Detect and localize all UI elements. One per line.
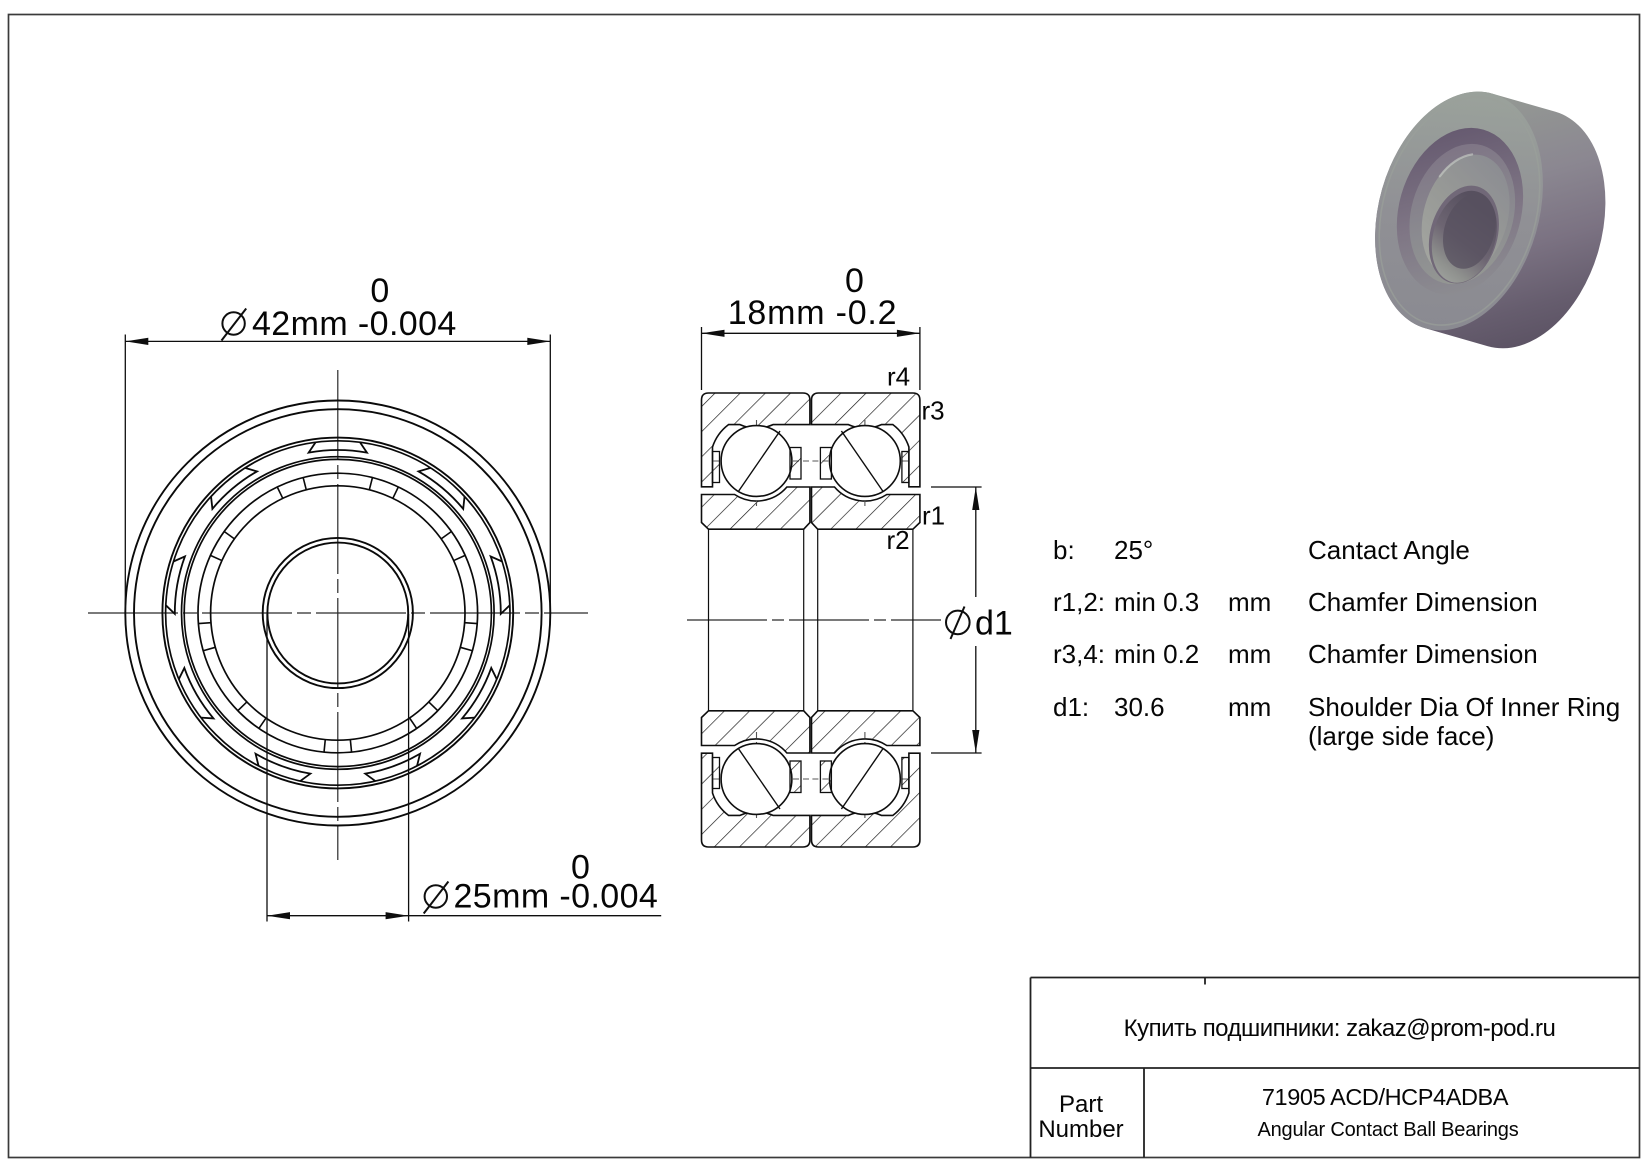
svg-text:25°: 25° <box>1114 535 1153 565</box>
svg-text:min 0.2: min 0.2 <box>1114 639 1199 669</box>
svg-text:Angular Contact Ball Bearings: Angular Contact Ball Bearings <box>1257 1119 1518 1141</box>
svg-text:71905 ACD/HCP4ADBA: 71905 ACD/HCP4ADBA <box>1262 1084 1509 1110</box>
svg-text:Part: Part <box>1059 1091 1103 1118</box>
svg-text:b:: b: <box>1053 535 1075 565</box>
svg-text:25mm -0.004: 25mm -0.004 <box>454 878 659 916</box>
svg-text:mm: mm <box>1228 587 1271 617</box>
svg-text:Купить подшипники: zakaz@prom-: Купить подшипники: zakaz@prom-pod.ru <box>1124 1015 1556 1042</box>
svg-text:min 0.3: min 0.3 <box>1114 587 1199 617</box>
svg-text:Chamfer Dimension: Chamfer Dimension <box>1308 587 1538 617</box>
svg-text:d1:: d1: <box>1053 692 1089 722</box>
svg-text:30.6: 30.6 <box>1114 692 1165 722</box>
svg-text:mm: mm <box>1228 692 1271 722</box>
svg-text:r3: r3 <box>922 396 945 426</box>
svg-text:r1: r1 <box>922 501 945 531</box>
svg-text:r1,2:: r1,2: <box>1053 587 1105 617</box>
svg-text:Cantact Angle: Cantact Angle <box>1308 535 1470 565</box>
svg-text:Chamfer Dimension: Chamfer Dimension <box>1308 639 1538 669</box>
svg-text:r2: r2 <box>887 525 910 555</box>
svg-text:r3,4:: r3,4: <box>1053 639 1105 669</box>
svg-text:42mm -0.004: 42mm -0.004 <box>252 305 457 343</box>
svg-text:0: 0 <box>571 849 590 887</box>
svg-text:0: 0 <box>845 262 864 300</box>
svg-text:18mm -0.2: 18mm -0.2 <box>728 294 898 332</box>
svg-text:Number: Number <box>1038 1116 1123 1143</box>
svg-text:Shoulder Dia Of Inner Ring: Shoulder Dia Of Inner Ring <box>1308 692 1620 722</box>
svg-text:mm: mm <box>1228 639 1271 669</box>
svg-text:d1: d1 <box>975 605 1013 643</box>
svg-text:r4: r4 <box>887 362 910 392</box>
svg-text:0: 0 <box>370 272 389 310</box>
svg-text:(large side face): (large side face) <box>1308 721 1494 751</box>
